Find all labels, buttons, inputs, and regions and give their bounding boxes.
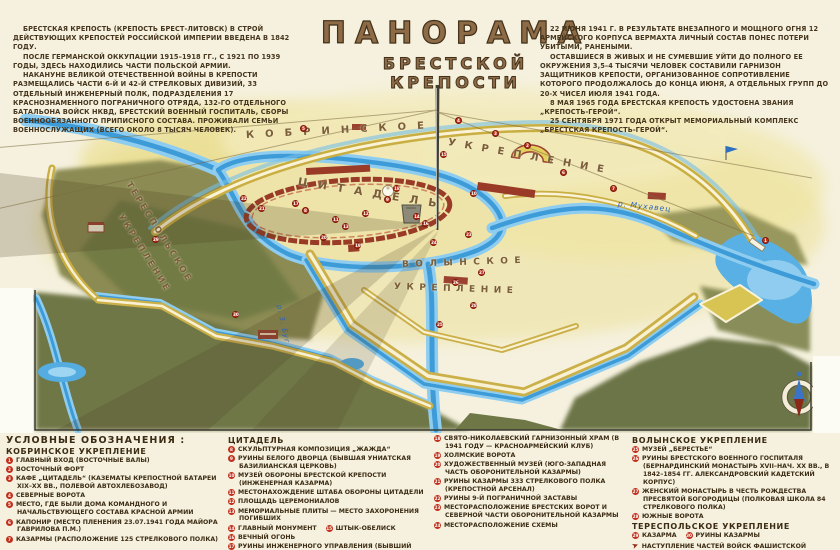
legend-column: ЦИТАДЕЛЬ8СКУЛЬПТУРНАЯ КОМПОЗИЦИЯ „ЖАЖДА“… bbox=[228, 435, 430, 550]
legend-item-text: КАЗАРМА bbox=[642, 532, 677, 539]
legend-item: 5МЕСТО, ГДЕ БЫЛИ ДОМА КОМАНДНОГО И НАЧАЛ… bbox=[6, 501, 224, 517]
legend-number-marker: 21 bbox=[434, 478, 441, 485]
legend-number-marker: 13 bbox=[228, 508, 235, 515]
legend-item-text: МЕСТОРАСПОЛОЖЕНИЕ СХЕМЫ bbox=[444, 522, 558, 529]
intro-paragraph: 25 СЕНТЯБРЯ 1971 ГОДА ОТКРЫТ МЕМОРИАЛЬНЫ… bbox=[540, 117, 834, 135]
legend-number-marker: 5 bbox=[6, 501, 13, 508]
intro-paragraph: БРЕСТСКАЯ КРЕПОСТЬ (КРЕПОСТЬ БРЕСТ-ЛИТОВ… bbox=[13, 25, 308, 53]
legend-item: 18СВЯТО-НИКОЛАЕВСКИЙ ГАРНИЗОННЫЙ ХРАМ (В… bbox=[434, 435, 628, 451]
legend-item-text: ХОЛМСКИЕ ВОРОТА bbox=[444, 452, 515, 459]
legend-number-marker: 10 bbox=[228, 472, 235, 479]
legend-item-text: МУЗЕЙ „БЕРЕСТЬЕ“ bbox=[642, 446, 712, 453]
legend-section-header: КОБРИНСКОЕ УКРЕПЛЕНИЕ bbox=[6, 447, 224, 456]
legend-item-text: КАЗАРМЫ (РАСПОЛОЖЕНИЕ 125 СТРЕЛКОВОГО ПО… bbox=[16, 536, 218, 543]
legend-section-header: ЦИТАДЕЛЬ bbox=[228, 436, 430, 445]
intro-right: 22 ИЮНЯ 1941 Г. В РЕЗУЛЬТАТЕ ВНЕЗАПНОГО … bbox=[540, 25, 834, 136]
legend-number-marker: 1 bbox=[6, 457, 13, 464]
legend-item: 9РУИНЫ БЕЛОГО ДВОРЦА (БЫВШАЯ УНИАТСКАЯ Б… bbox=[228, 455, 430, 471]
legend-item-text: СЕВЕРНЫЕ ВОРОТА bbox=[16, 492, 85, 499]
legend-item: 21РУИНЫ КАЗАРМЫ 333 СТРЕЛКОВОГО ПОЛКА (К… bbox=[434, 478, 628, 494]
legend-item: 23МЕСТОРАСПОЛОЖЕНИЕ БРЕСТСКИХ ВОРОТ И СЕ… bbox=[434, 504, 628, 520]
legend-number-marker: 2 bbox=[6, 466, 13, 473]
legend-item: 16ВЕЧНЫЙ ОГОНЬ bbox=[228, 534, 430, 542]
legend-item-text: ХУДОЖЕСТВЕННЫЙ МУЗЕЙ (ЮГО-ЗАПАДНАЯ ЧАСТЬ… bbox=[444, 461, 606, 476]
legend-column: 18СВЯТО-НИКОЛАЕВСКИЙ ГАРНИЗОННЫЙ ХРАМ (В… bbox=[434, 435, 628, 550]
legend-item-text: МЕСТОРАСПОЛОЖЕНИЕ БРЕСТСКИХ ВОРОТ И СЕВЕ… bbox=[444, 504, 619, 519]
legend-section-header: ВОЛЫНСКОЕ УКРЕПЛЕНИЕ bbox=[632, 436, 838, 445]
legend-number-marker: 25 bbox=[632, 446, 639, 453]
legend-number-marker: 15 bbox=[326, 525, 333, 532]
legend-item-text: РУИНЫ БЕЛОГО ДВОРЦА (БЫВШАЯ УНИАТСКАЯ БА… bbox=[238, 455, 411, 470]
legend-item: 26РУИНЫ БРЕСТСКОГО ВОЕННОГО ГОСПИТАЛЯ (Б… bbox=[632, 455, 838, 487]
legend-item-text: СВЯТО-НИКОЛАЕВСКИЙ ГАРНИЗОННЫЙ ХРАМ (В 1… bbox=[444, 435, 619, 450]
legend-item: 4СЕВЕРНЫЕ ВОРОТА bbox=[6, 492, 224, 500]
panorama-poster: КОБРИНСКОЕУКРЕПЛЕНИЕЦИТАДЕЛЬВОЛЫНСКОЕУКР… bbox=[0, 0, 840, 550]
intro-paragraph: 22 ИЮНЯ 1941 Г. В РЕЗУЛЬТАТЕ ВНЕЗАПНОГО … bbox=[540, 25, 834, 53]
legend-number-marker: 6 bbox=[6, 519, 13, 526]
legend-number-marker: 28 bbox=[632, 513, 639, 520]
legend-item: 6КАПОНИР (МЕСТО ПЛЕНЕНИЯ 23.07.1941 ГОДА… bbox=[6, 519, 224, 535]
legend-item: 1ГЛАВНЫЙ ВХОД (ВОСТОЧНЫЕ ВАЛЫ) bbox=[6, 457, 224, 465]
legend-item: 22РУИНЫ 9-Й ПОГРАНИЧНОЙ ЗАСТАВЫ bbox=[434, 495, 628, 503]
legend-item: 25МУЗЕЙ „БЕРЕСТЬЕ“ bbox=[632, 446, 838, 454]
intro-paragraph: НАКАНУНЕ ВЕЛИКОЙ ОТЕЧЕСТВЕННОЙ ВОЙНЫ В К… bbox=[13, 71, 308, 136]
legend-item: 10МУЗЕЙ ОБОРОНЫ БРЕСТСКОЙ КРЕПОСТИ (ИНЖЕ… bbox=[228, 472, 430, 488]
legend-item: 14ГЛАВНЫЙ МОНУМЕНТ15ШТЫК-ОБЕЛИСК bbox=[228, 525, 430, 533]
kholm-gate bbox=[348, 244, 359, 252]
legend-item-text: ГЛАВНЫЙ ВХОД (ВОСТОЧНЫЕ ВАЛЫ) bbox=[16, 457, 150, 464]
legend-number-marker: 16 bbox=[228, 534, 235, 541]
legend-number-marker: 23 bbox=[434, 504, 441, 511]
legend-item-text: НАСТУПЛЕНИЕ ЧАСТЕЙ ВОЙСК ФАШИСТСКОЙ ГЕРМ… bbox=[642, 543, 806, 550]
legend-section-header: ТЕРЕСПОЛЬСКОЕ УКРЕПЛЕНИЕ bbox=[632, 522, 838, 531]
legend-item: 13МЕМОРИАЛЬНЫЕ ПЛИТЫ — МЕСТО ЗАХОРОНЕНИЯ… bbox=[228, 508, 430, 524]
legend-number-marker: 14 bbox=[228, 525, 235, 532]
legend-item: 19ХОЛМСКИЕ ВОРОТА bbox=[434, 452, 628, 460]
legend-number-marker: 7 bbox=[6, 536, 13, 543]
legend-item-text: КАПОНИР (МЕСТО ПЛЕНЕНИЯ 23.07.1941 ГОДА … bbox=[16, 519, 218, 534]
legend-item: ➤НАСТУПЛЕНИЕ ЧАСТЕЙ ВОЙСК ФАШИСТСКОЙ ГЕР… bbox=[632, 541, 838, 550]
legend-item: 7КАЗАРМЫ (РАСПОЛОЖЕНИЕ 125 СТРЕЛКОВОГО П… bbox=[6, 536, 224, 544]
legend-number-marker: 30 bbox=[686, 532, 693, 539]
intro-paragraph: ПОСЛЕ ГЕРМАНСКОЙ ОККУПАЦИИ 1915–1918 ГГ.… bbox=[13, 53, 308, 71]
legend-item-text: ВЕЧНЫЙ ОГОНЬ bbox=[238, 534, 295, 541]
legend-number-marker: 26 bbox=[632, 455, 639, 462]
legend-item: 27ЖЕНСКИЙ МОНАСТЫРЬ В ЧЕСТЬ РОЖДЕСТВА ПР… bbox=[632, 488, 838, 512]
legend-item-text: ШТЫК-ОБЕЛИСК bbox=[336, 525, 396, 532]
legend-item: 20ХУДОЖЕСТВЕННЫЙ МУЗЕЙ (ЮГО-ЗАПАДНАЯ ЧАС… bbox=[434, 461, 628, 477]
legend-item: 3КАФЕ „ЦИТАДЕЛЬ“ (КАЗЕМАТЫ КРЕПОСТНОЙ БА… bbox=[6, 475, 224, 491]
legend-item-text: СКУЛЬПТУРНАЯ КОМПОЗИЦИЯ „ЖАЖДА“ bbox=[238, 446, 391, 453]
legend-title: УСЛОВНЫЕ ОБОЗНАЧЕНИЯ : bbox=[6, 435, 224, 446]
legend: УСЛОВНЫЕ ОБОЗНАЧЕНИЯ :КОБРИНСКОЕ УКРЕПЛЕ… bbox=[0, 433, 840, 550]
legend-item: 17РУИНЫ ИНЖЕНЕРНОГО УПРАВЛЕНИЯ (БЫВШИЙ К… bbox=[228, 543, 430, 550]
legend-column: УСЛОВНЫЕ ОБОЗНАЧЕНИЯ :КОБРИНСКОЕ УКРЕПЛЕ… bbox=[6, 435, 224, 550]
legend-number-marker: 22 bbox=[434, 495, 441, 502]
legend-number-marker: 4 bbox=[6, 492, 13, 499]
legend-item-text: РУИНЫ БРЕСТСКОГО ВОЕННОГО ГОСПИТАЛЯ (БЕР… bbox=[642, 455, 829, 486]
legend-item-text: МЕМОРИАЛЬНЫЕ ПЛИТЫ — МЕСТО ЗАХОРОНЕНИЯ П… bbox=[238, 508, 419, 523]
legend-number-marker: 12 bbox=[228, 498, 235, 505]
legend-number-marker: 8 bbox=[228, 446, 235, 453]
legend-item-text: ВОСТОЧНЫЙ ФОРТ bbox=[16, 466, 84, 473]
legend-number-marker: 29 bbox=[632, 532, 639, 539]
legend-item: 8СКУЛЬПТУРНАЯ КОМПОЗИЦИЯ „ЖАЖДА“ bbox=[228, 446, 430, 454]
legend-item-text: РУИНЫ 9-Й ПОГРАНИЧНОЙ ЗАСТАВЫ bbox=[444, 495, 577, 502]
legend-item-text: ПЛОЩАДЬ ЦЕРЕМОНИАЛОВ bbox=[238, 498, 339, 505]
legend-item-text: МУЗЕЙ ОБОРОНЫ БРЕСТСКОЙ КРЕПОСТИ (ИНЖЕНЕ… bbox=[238, 472, 386, 487]
legend-item-text: КАФЕ „ЦИТАДЕЛЬ“ (КАЗЕМАТЫ КРЕПОСТНОЙ БАТ… bbox=[16, 475, 216, 490]
intro-paragraph: 8 МАЯ 1965 ГОДА БРЕСТСКАЯ КРЕПОСТЬ УДОСТ… bbox=[540, 99, 834, 117]
legend-item-text: ЖЕНСКИЙ МОНАСТЫРЬ В ЧЕСТЬ РОЖДЕСТВА ПРЕС… bbox=[642, 488, 826, 511]
legend-number-marker: 18 bbox=[434, 435, 441, 442]
legend-item-text: МЕСТОНАХОЖДЕНИЕ ШТАБА ОБОРОНЫ ЦИТАДЕЛИ bbox=[238, 489, 424, 496]
legend-number-marker: 3 bbox=[6, 475, 13, 482]
legend-item-text: ЮЖНЫЕ ВОРОТА bbox=[642, 513, 704, 520]
legend-item: 2ВОСТОЧНЫЙ ФОРТ bbox=[6, 466, 224, 474]
legend-item-text: МЕСТО, ГДЕ БЫЛИ ДОМА КОМАНДНОГО И НАЧАЛЬ… bbox=[16, 501, 193, 516]
legend-item-text: РУИНЫ КАЗАРМЫ bbox=[696, 532, 760, 539]
legend-item: 29КАЗАРМА30РУИНЫ КАЗАРМЫ bbox=[632, 532, 838, 540]
legend-item: 24МЕСТОРАСПОЛОЖЕНИЕ СХЕМЫ bbox=[434, 522, 628, 530]
legend-number-marker: 17 bbox=[228, 543, 235, 550]
legend-number-marker: 19 bbox=[434, 452, 441, 459]
legend-item: 12ПЛОЩАДЬ ЦЕРЕМОНИАЛОВ bbox=[228, 498, 430, 506]
legend-number-marker: 11 bbox=[228, 489, 235, 496]
attack-arrow-icon: ➤ bbox=[630, 540, 640, 550]
legend-column: ВОЛЫНСКОЕ УКРЕПЛЕНИЕ25МУЗЕЙ „БЕРЕСТЬЕ“26… bbox=[632, 435, 838, 550]
legend-item: 11МЕСТОНАХОЖДЕНИЕ ШТАБА ОБОРОНЫ ЦИТАДЕЛИ bbox=[228, 489, 430, 497]
legend-number-marker: 24 bbox=[434, 522, 441, 529]
legend-number-marker: 20 bbox=[434, 461, 441, 468]
legend-item-text: РУИНЫ ИНЖЕНЕРНОГО УПРАВЛЕНИЯ (БЫВШИЙ КОЛ… bbox=[238, 543, 411, 550]
legend-item-text: РУИНЫ КАЗАРМЫ 333 СТРЕЛКОВОГО ПОЛКА (КРЕ… bbox=[444, 478, 605, 493]
legend-number-marker: 27 bbox=[632, 488, 639, 495]
intro-left: БРЕСТСКАЯ КРЕПОСТЬ (КРЕПОСТЬ БРЕСТ-ЛИТОВ… bbox=[13, 25, 308, 136]
legend-item: 28ЮЖНЫЕ ВОРОТА bbox=[632, 513, 838, 521]
legend-number-marker: 9 bbox=[228, 455, 235, 462]
intro-paragraph: ОСТАВШИЕСЯ В ЖИВЫХ И НЕ СУМЕВШИЕ УЙТИ ДО… bbox=[540, 53, 834, 99]
legend-item-text: ГЛАВНЫЙ МОНУМЕНТ bbox=[238, 525, 317, 532]
